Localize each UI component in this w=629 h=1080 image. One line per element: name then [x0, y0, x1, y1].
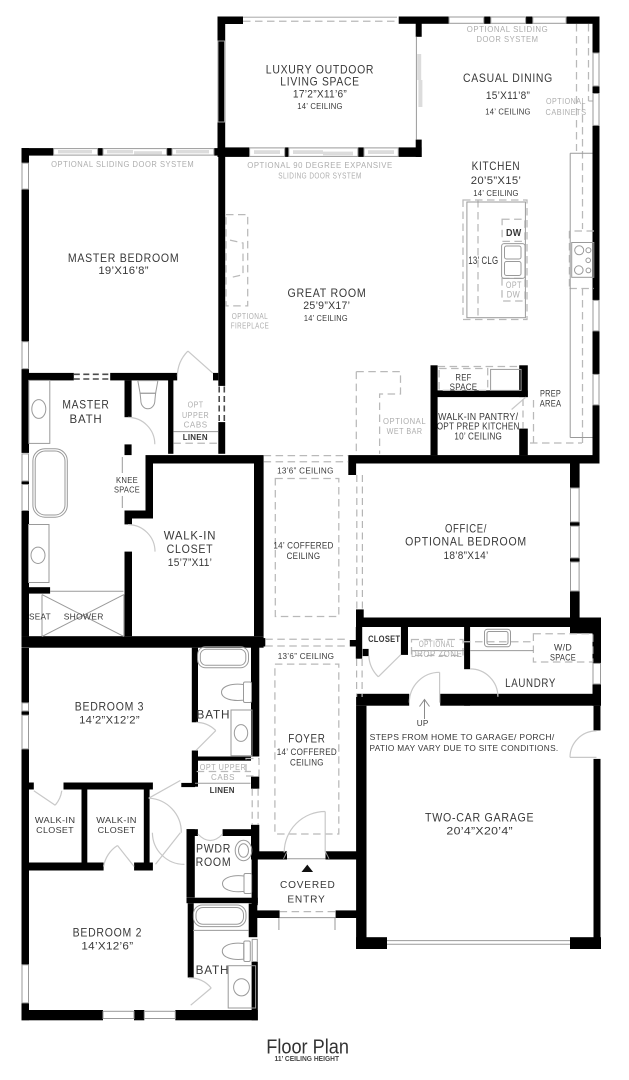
svg-text:ROOM: ROOM [196, 856, 232, 869]
svg-text:LIVING SPACE: LIVING SPACE [280, 75, 359, 88]
svg-text:SHOWER: SHOWER [64, 612, 104, 622]
svg-text:13’ CLG: 13’ CLG [468, 255, 498, 267]
svg-text:LINEN: LINEN [183, 432, 208, 442]
svg-text:14’ CEILING: 14’ CEILING [473, 188, 519, 198]
svg-text:ENTRY: ENTRY [287, 894, 325, 905]
svg-text:CABS: CABS [211, 772, 235, 782]
svg-text:PREP: PREP [540, 389, 561, 399]
svg-text:WALK-IN: WALK-IN [35, 815, 76, 825]
svg-text:WALK-IN: WALK-IN [96, 815, 137, 825]
svg-text:OPTIONAL: OPTIONAL [546, 96, 586, 106]
svg-text:WALK-IN: WALK-IN [164, 529, 216, 542]
svg-text:OPTIONAL 90 DEGREE EXPANSIVE: OPTIONAL 90 DEGREE EXPANSIVE [247, 160, 393, 170]
svg-text:BEDROOM 3: BEDROOM 3 [75, 700, 145, 713]
svg-text:11’ CEILING HEIGHT: 11’ CEILING HEIGHT [275, 1054, 340, 1063]
svg-text:OPTIONAL BEDROOM: OPTIONAL BEDROOM [405, 536, 527, 549]
svg-text:10’ CEILING: 10’ CEILING [454, 432, 502, 443]
svg-text:DW: DW [507, 290, 521, 301]
svg-text:20’4”X20’4”: 20’4”X20’4” [446, 826, 513, 838]
svg-text:CABINETS: CABINETS [546, 107, 587, 117]
svg-text:OPTIONAL: OPTIONAL [383, 416, 426, 426]
svg-text:AREA: AREA [540, 399, 562, 409]
svg-text:20’5”X15’: 20’5”X15’ [471, 175, 522, 187]
svg-text:W/D: W/D [554, 643, 572, 653]
svg-text:KNEE: KNEE [116, 475, 138, 485]
svg-text:SPACE: SPACE [550, 653, 576, 663]
svg-text:REF: REF [455, 373, 471, 383]
svg-text:BEDROOM 2: BEDROOM 2 [73, 927, 143, 940]
svg-text:SLIDING DOOR SYSTEM: SLIDING DOOR SYSTEM [278, 170, 362, 180]
svg-text:DW: DW [506, 227, 522, 239]
svg-text:CLOSET: CLOSET [36, 825, 74, 835]
svg-text:CEILING: CEILING [290, 758, 324, 769]
svg-text:LINEN: LINEN [210, 785, 235, 795]
svg-text:WET BAR: WET BAR [387, 426, 423, 436]
svg-text:SPACE: SPACE [450, 382, 478, 392]
svg-text:OPTIONAL: OPTIONAL [232, 311, 269, 321]
svg-text:25’9”X17’: 25’9”X17’ [303, 300, 350, 312]
svg-text:DOOR SYSTEM: DOOR SYSTEM [476, 34, 538, 44]
svg-text:13’6” CEILING: 13’6” CEILING [277, 466, 334, 476]
svg-text:18’8”X14’: 18’8”X14’ [444, 550, 489, 562]
svg-text:BATH: BATH [196, 964, 230, 977]
svg-text:14’ CEILING: 14’ CEILING [304, 313, 348, 323]
svg-text:DROP ZONE: DROP ZONE [411, 649, 462, 659]
svg-text:KITCHEN: KITCHEN [472, 160, 521, 173]
svg-text:FOYER: FOYER [288, 732, 325, 745]
svg-text:CASUAL DINING: CASUAL DINING [463, 72, 553, 85]
svg-text:14’ COFFERED: 14’ COFFERED [277, 747, 337, 758]
svg-text:14’X12’6”: 14’X12’6” [81, 941, 133, 953]
svg-text:14’ COFFERED: 14’ COFFERED [273, 541, 333, 552]
svg-text:CABS: CABS [184, 419, 208, 429]
svg-text:14’ CEILING: 14’ CEILING [485, 107, 531, 117]
svg-text:17’2”X11’6”: 17’2”X11’6” [293, 89, 347, 101]
svg-text:13’6” CEILING: 13’6” CEILING [278, 651, 335, 661]
svg-text:CLOSET: CLOSET [368, 634, 400, 644]
svg-text:OPT: OPT [188, 400, 204, 410]
svg-text:BATH: BATH [197, 708, 231, 721]
svg-text:PATIO MAY VARY DUE TO SITE CON: PATIO MAY VARY DUE TO SITE CONDITIONS. [370, 743, 559, 753]
svg-text:MASTER BEDROOM: MASTER BEDROOM [68, 252, 180, 265]
svg-text:OPTIONAL SLIDING: OPTIONAL SLIDING [467, 24, 549, 34]
svg-text:SEAT: SEAT [29, 612, 51, 622]
svg-text:LAUNDRY: LAUNDRY [505, 677, 556, 690]
svg-text:STEPS FROM HOME TO GARAGE/ POR: STEPS FROM HOME TO GARAGE/ PORCH/ [370, 732, 555, 742]
svg-text:CEILING: CEILING [287, 551, 321, 562]
svg-text:UPPER: UPPER [182, 410, 209, 420]
svg-text:CLOSET: CLOSET [98, 825, 136, 835]
svg-text:14’ CEILING: 14’ CEILING [297, 101, 343, 111]
svg-text:14’2”X12’2”: 14’2”X12’2” [79, 715, 140, 727]
svg-text:OPT UPPER: OPT UPPER [200, 762, 247, 772]
svg-text:OPTIONAL SLIDING DOOR SYSTEM: OPTIONAL SLIDING DOOR SYSTEM [51, 159, 194, 169]
svg-text:FIREPLACE: FIREPLACE [231, 321, 270, 331]
svg-text:BATH: BATH [70, 413, 103, 426]
svg-text:COVERED: COVERED [280, 880, 336, 891]
svg-text:15’7”X11’: 15’7”X11’ [168, 557, 212, 569]
svg-text:MASTER: MASTER [62, 399, 109, 412]
svg-text:UP: UP [417, 718, 429, 728]
svg-text:TWO-CAR GARAGE: TWO-CAR GARAGE [425, 812, 534, 825]
svg-text:GREAT ROOM: GREAT ROOM [288, 287, 367, 300]
svg-text:OPTIONAL: OPTIONAL [419, 639, 455, 649]
svg-text:OFFICE/: OFFICE/ [445, 522, 487, 535]
svg-text:SPACE: SPACE [114, 485, 140, 495]
svg-text:15’X11’8”: 15’X11’8” [486, 90, 530, 102]
svg-text:19’X16’8”: 19’X16’8” [98, 265, 149, 277]
svg-text:CLOSET: CLOSET [167, 543, 214, 556]
svg-text:PWDR: PWDR [196, 842, 231, 855]
